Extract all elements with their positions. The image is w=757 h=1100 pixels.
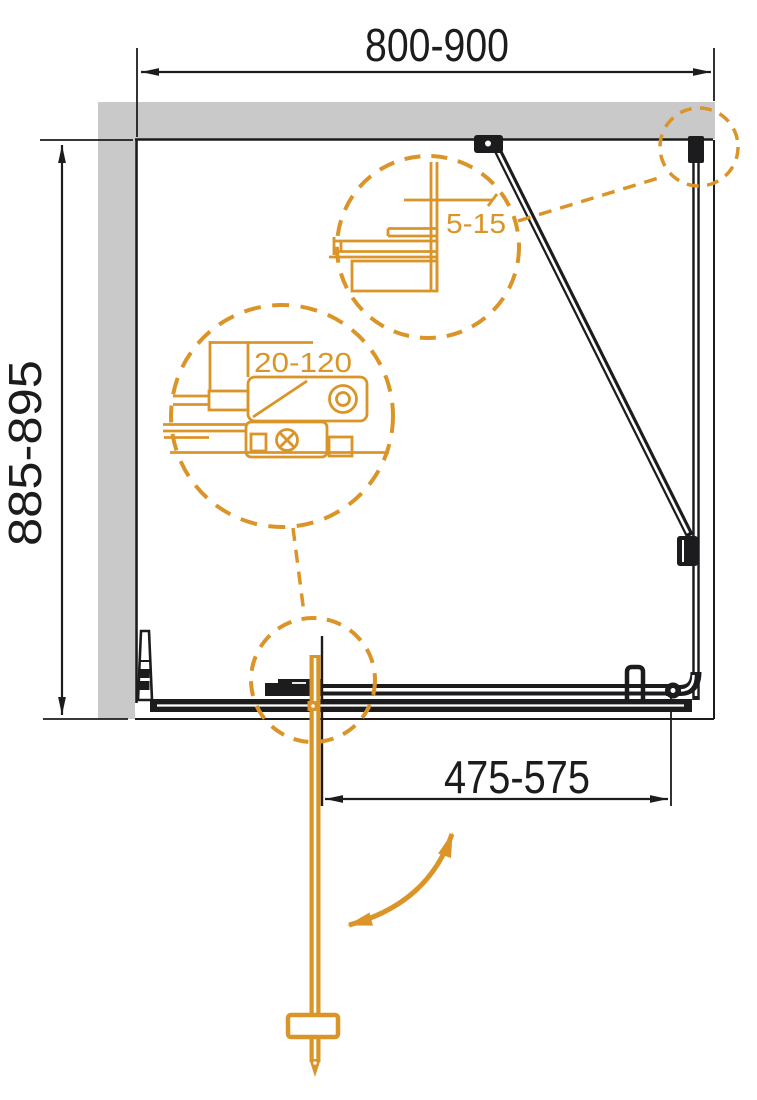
support-bar-glass-clamp (677, 536, 698, 566)
width-dimension-label: 800-900 (365, 19, 509, 71)
door-width-dimension-label: 475-575 (444, 751, 590, 803)
right-panel-top-bracket (688, 136, 704, 163)
door-and-callouts: 5-15 20-120 (163, 108, 738, 1077)
front-glass-stub (265, 683, 278, 696)
wall-profile-screw-lower (140, 681, 150, 690)
top-wall (98, 102, 715, 139)
door-swing-arrow (349, 834, 452, 925)
door-pivot-pin-hole (311, 704, 315, 708)
wall-profile-screw-upper (140, 669, 150, 678)
door-handle (288, 1015, 338, 1037)
support-bar-mount-hole (485, 141, 491, 147)
wall-profile-detail-circle (337, 156, 519, 338)
adjustment-detail-label: 20-120 (254, 347, 352, 378)
shower-enclosure-plan-diagram: 800-900 885-895 475-575 (0, 0, 757, 1100)
support-bar-gap (498, 152, 688, 533)
left-wall (98, 139, 135, 719)
depth-dimension-label: 885-895 (0, 360, 51, 546)
corner-connector-hole (671, 688, 676, 693)
callout-link-top (518, 176, 665, 221)
pivot-door-tip-hole (313, 1061, 317, 1065)
adjustment-detail-circle (171, 305, 393, 527)
plan-view-drawing: 800-900 885-895 475-575 (0, 0, 757, 1100)
callout-link-bottom (293, 528, 304, 613)
walls (98, 102, 715, 719)
wall-profile-detail-label: 5-15 (446, 208, 506, 239)
footprint-outline (135, 140, 714, 719)
